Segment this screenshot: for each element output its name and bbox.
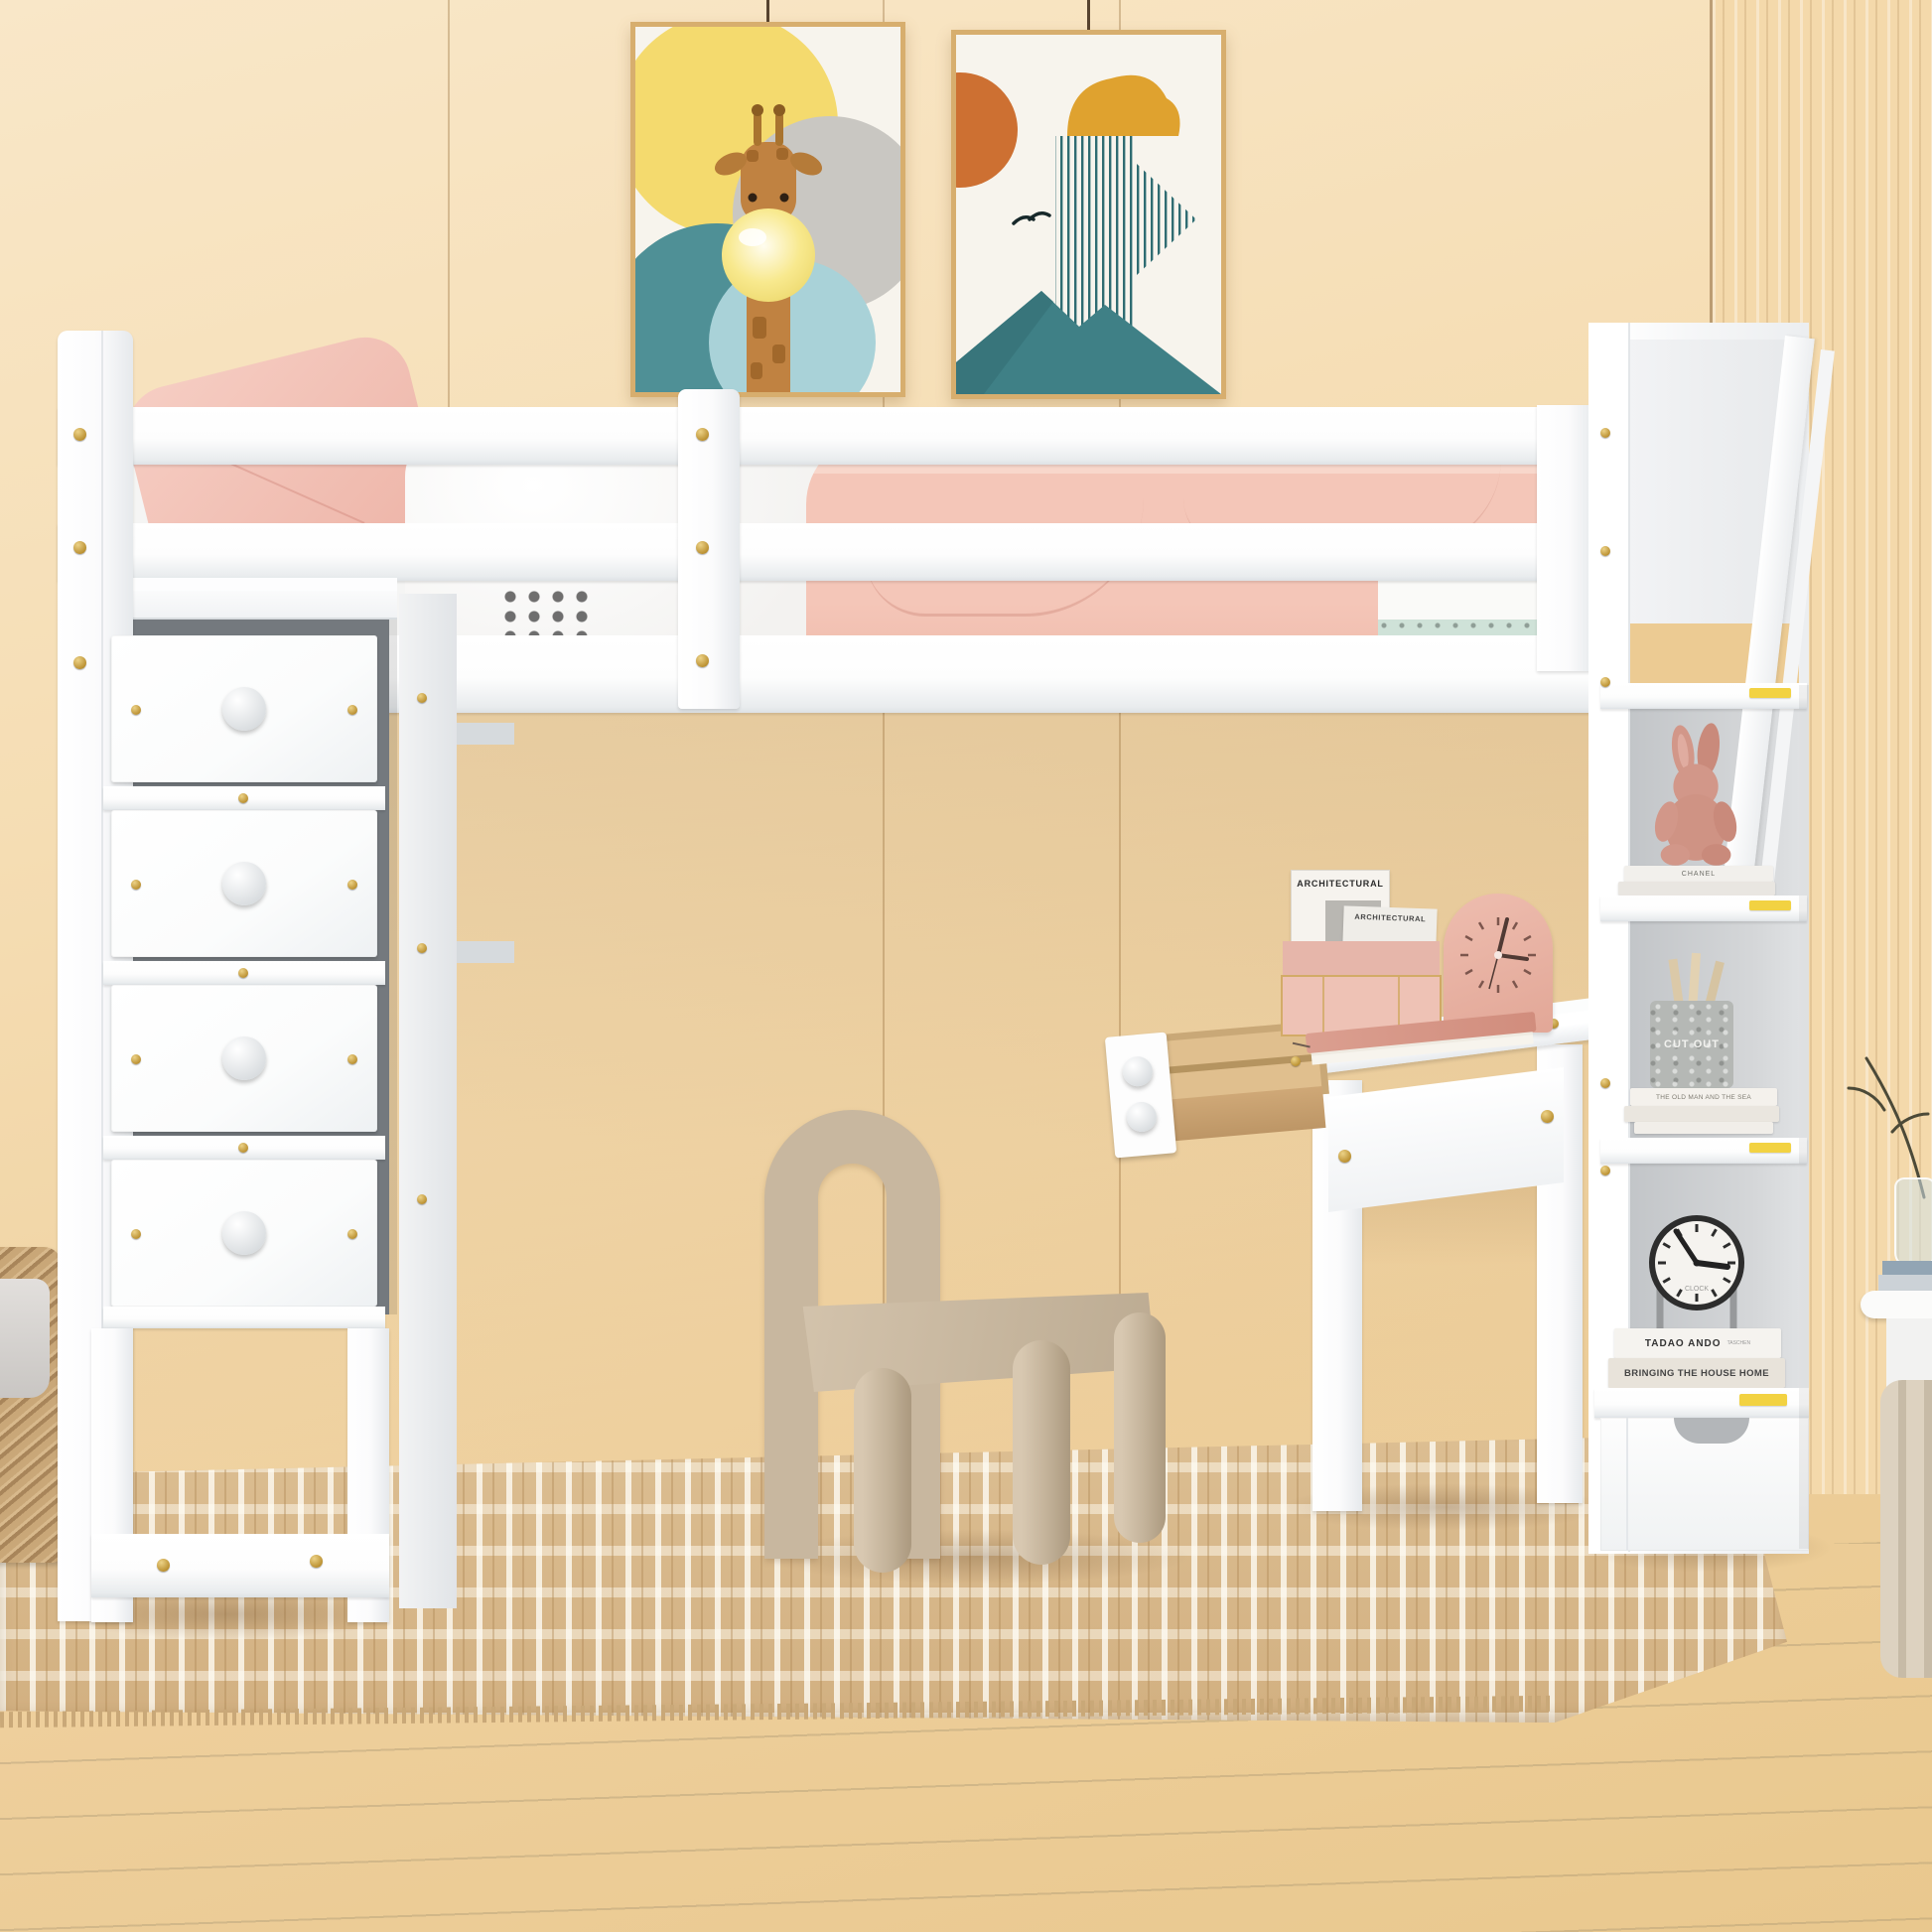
book-publisher: TASCHEN bbox=[1727, 1340, 1751, 1346]
plush-bunny bbox=[1640, 721, 1757, 870]
bed-support-post bbox=[399, 594, 457, 1608]
dresser-top-surface bbox=[91, 578, 397, 591]
gold-screw bbox=[696, 654, 709, 667]
side-table-top bbox=[1861, 1291, 1932, 1318]
gold-screw bbox=[238, 793, 248, 803]
desk-drawer-front bbox=[1105, 1033, 1176, 1159]
drawer-cutout-handle bbox=[1674, 1418, 1749, 1444]
book-spine bbox=[1634, 1122, 1773, 1134]
panel-seam bbox=[1626, 1418, 1628, 1551]
bed-post-right bbox=[1537, 405, 1594, 671]
dresser-drawer bbox=[111, 810, 377, 957]
gold-screw bbox=[157, 1559, 170, 1572]
drawer-knob bbox=[222, 687, 266, 731]
tower-edge-shadow bbox=[1799, 685, 1809, 1549]
book-title: BRINGING THE HOUSE HOME bbox=[1624, 1368, 1769, 1379]
chair-leg bbox=[1013, 1340, 1070, 1565]
kids-room-photo: ARCHITECTURAL ARCHITECTURAL bbox=[0, 0, 1932, 1932]
mountain-artwork bbox=[956, 35, 1221, 394]
gold-screw bbox=[131, 880, 141, 890]
support-bracket bbox=[457, 941, 514, 963]
drawer-knob bbox=[1126, 1101, 1159, 1134]
jar-label: CUT OUT bbox=[1664, 1038, 1720, 1050]
gold-screw bbox=[417, 1194, 427, 1204]
gold-screw bbox=[238, 968, 248, 978]
chair-leg bbox=[854, 1368, 911, 1573]
magazine-title: ARCHITECTURAL bbox=[1292, 879, 1389, 889]
gold-screw bbox=[1541, 1110, 1554, 1123]
chair-leg bbox=[1114, 1312, 1166, 1543]
gold-screw bbox=[347, 880, 357, 890]
gold-screw bbox=[131, 705, 141, 715]
gold-screw bbox=[696, 541, 709, 554]
gold-screw bbox=[696, 428, 709, 441]
storage-drawer bbox=[1600, 1418, 1809, 1551]
organizer-wire bbox=[1322, 977, 1324, 1035]
dresser-drawer bbox=[111, 1160, 377, 1307]
guard-rail-bottom bbox=[58, 523, 1594, 581]
glass-vase bbox=[1894, 1177, 1932, 1267]
gold-screw bbox=[1600, 546, 1610, 556]
bed-post-middle bbox=[678, 389, 740, 709]
dresser-bottom-rail bbox=[91, 1534, 389, 1597]
shelf-clock: CLOCK bbox=[1636, 1187, 1757, 1344]
pouf bbox=[1880, 1380, 1932, 1678]
gold-screw bbox=[347, 1054, 357, 1064]
book-stack bbox=[1878, 1275, 1932, 1291]
gold-screw bbox=[131, 1229, 141, 1239]
mountain-poster bbox=[951, 30, 1226, 399]
support-bracket bbox=[457, 723, 514, 745]
dresser-drawer bbox=[111, 635, 377, 782]
dresser-base-rail bbox=[103, 1307, 385, 1328]
gold-screw bbox=[238, 1143, 248, 1153]
book-spine: TADAO ANDO TASCHEN bbox=[1614, 1328, 1781, 1358]
gold-screw bbox=[417, 943, 427, 953]
warning-sticker bbox=[1739, 1394, 1787, 1406]
dresser-top bbox=[91, 578, 397, 620]
book-title: TADAO ANDO bbox=[1645, 1338, 1722, 1349]
drawer-knob bbox=[222, 1211, 266, 1255]
gold-screw bbox=[417, 693, 427, 703]
dresser-drawer bbox=[111, 985, 377, 1132]
giraffe-poster bbox=[630, 22, 905, 397]
dresser-side-shadow bbox=[389, 620, 397, 1314]
drawer-knob bbox=[222, 1036, 266, 1080]
warning-sticker bbox=[1749, 688, 1791, 698]
gold-screw bbox=[1338, 1150, 1351, 1163]
gold-screw bbox=[347, 1229, 357, 1239]
guard-rail-top bbox=[58, 407, 1594, 465]
drawer-knob bbox=[222, 862, 266, 905]
warning-sticker bbox=[1749, 900, 1791, 910]
book-spine: BRINGING THE HOUSE HOME bbox=[1608, 1358, 1785, 1388]
book-stack bbox=[1882, 1261, 1932, 1275]
magazine-title: ARCHITECTURAL bbox=[1343, 911, 1437, 923]
basket-cloth bbox=[0, 1279, 50, 1398]
giraffe-artwork bbox=[635, 27, 900, 392]
gold-screw bbox=[310, 1555, 323, 1568]
book-spine: CHANEL bbox=[1624, 866, 1773, 882]
pencil-jar: CUT OUT bbox=[1650, 1001, 1733, 1088]
gold-screw bbox=[347, 705, 357, 715]
warning-sticker bbox=[1749, 1143, 1791, 1153]
gold-screw bbox=[1600, 1166, 1610, 1175]
gold-screw bbox=[1291, 1056, 1301, 1066]
gold-screw bbox=[73, 541, 86, 554]
book-spine bbox=[1618, 882, 1775, 896]
book-spine bbox=[1624, 1106, 1779, 1122]
drawer-knob bbox=[1122, 1055, 1155, 1088]
gold-screw bbox=[1600, 677, 1610, 687]
gold-screw bbox=[73, 428, 86, 441]
gold-screw bbox=[1600, 1078, 1610, 1088]
clock-label: CLOCK bbox=[1685, 1286, 1709, 1293]
gold-screw bbox=[73, 656, 86, 669]
gold-screw bbox=[1600, 428, 1610, 438]
branch-in-vase bbox=[1833, 1040, 1932, 1199]
gold-screw bbox=[131, 1054, 141, 1064]
book-spine: THE OLD MAN AND THE SEA bbox=[1630, 1088, 1777, 1106]
